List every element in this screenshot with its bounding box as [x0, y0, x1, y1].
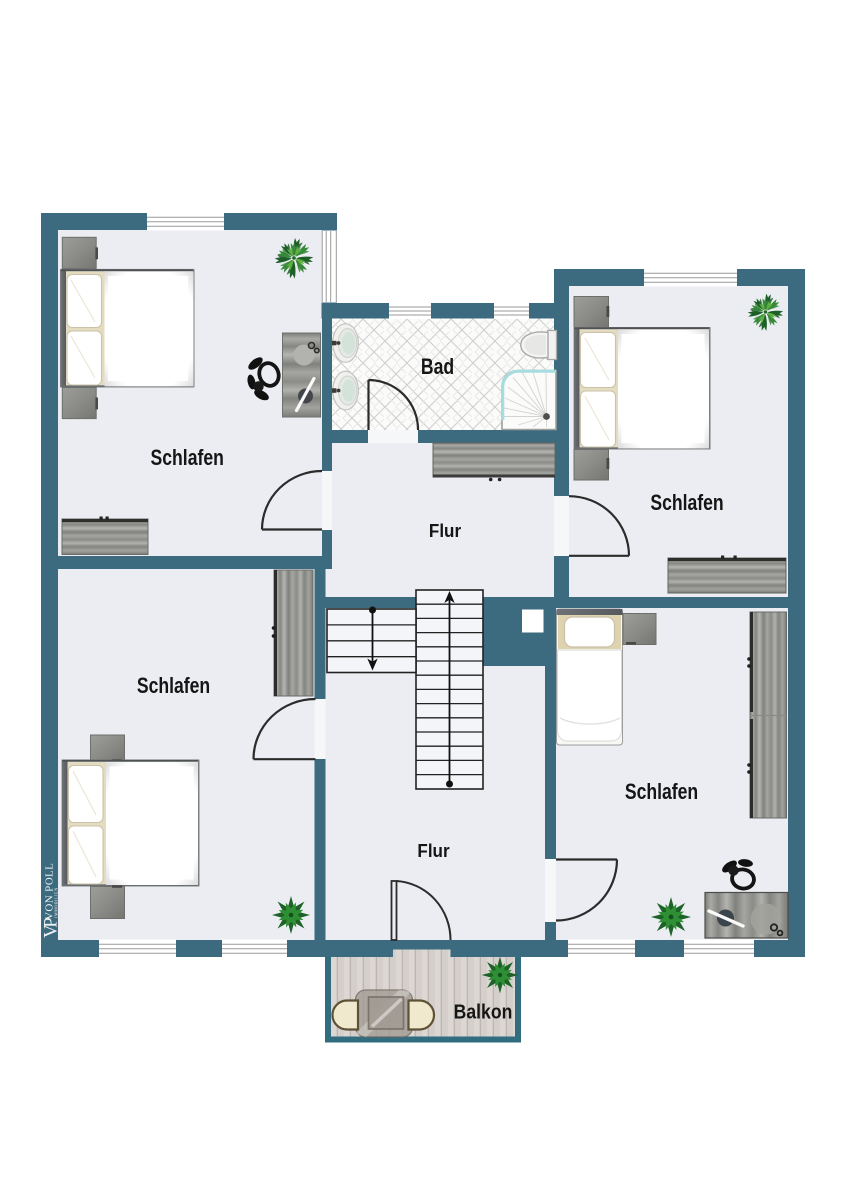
svg-text:Schlafen: Schlafen	[137, 674, 210, 698]
svg-text:Schlafen: Schlafen	[625, 780, 698, 804]
svg-text:Schlafen: Schlafen	[650, 491, 723, 515]
svg-text:IMMOBILIEN: IMMOBILIEN	[54, 887, 59, 918]
svg-text:Schlafen: Schlafen	[151, 446, 224, 470]
svg-text:Balkon: Balkon	[454, 1000, 513, 1022]
svg-text:Bad: Bad	[421, 355, 454, 379]
svg-text:Flur: Flur	[429, 520, 461, 541]
svg-text:Flur: Flur	[417, 840, 449, 861]
